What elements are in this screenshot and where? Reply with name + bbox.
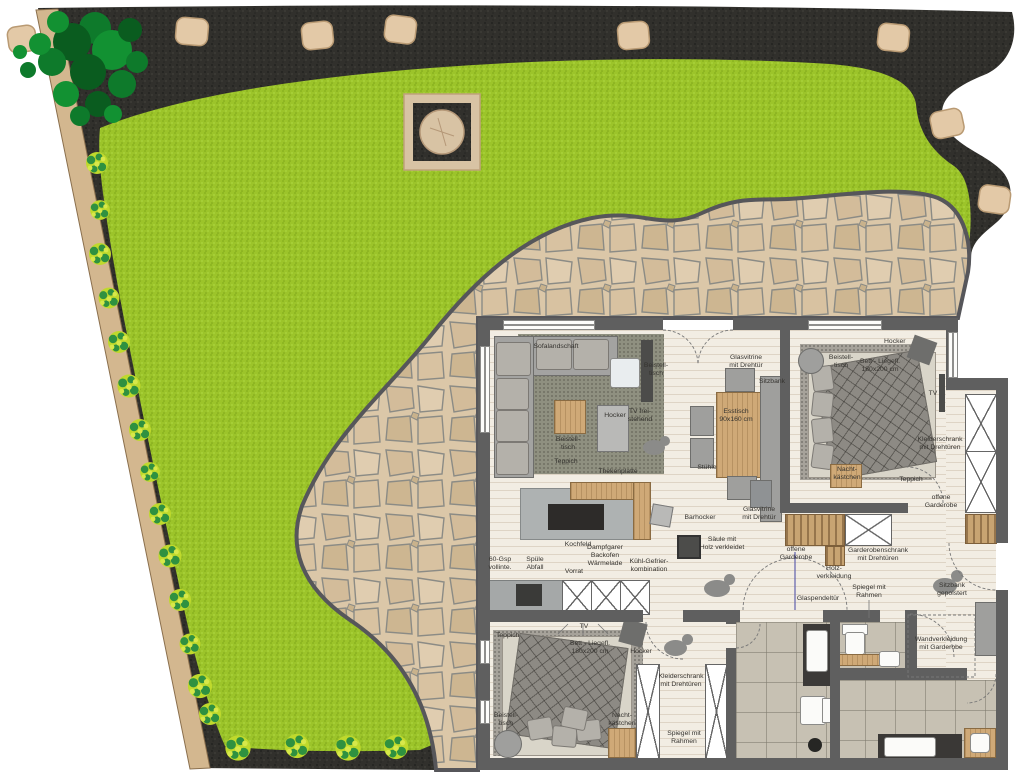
label-b2-nightstand: Nacht- kästchen	[608, 712, 635, 728]
terrace-door-swing	[698, 330, 733, 365]
label-hall-open-closet: offene Garderobe	[780, 546, 813, 562]
label-side-table-wood: Beistell- tisch	[556, 436, 580, 452]
label-hall-mirror: Spiegel mit Rahmen	[852, 584, 886, 600]
square-feature	[404, 94, 480, 170]
label-side-table-white: Beistell- tisch	[644, 362, 668, 378]
label-pantry: Vorrat	[565, 568, 583, 576]
leader-lines	[558, 600, 869, 635]
label-sink: Spüle Abfall	[526, 556, 543, 572]
label-b1-tv: TV	[929, 390, 938, 398]
label-b1-bed: Bett - Liegefl. 180x200 cm	[860, 358, 900, 374]
label-sofa: Sofalandschaft	[534, 343, 579, 351]
label-b2-tv: TV	[580, 623, 589, 631]
label-column: Säule mit Holz verkleidet	[700, 536, 745, 552]
label-b1-side-table: Beistell- tisch	[829, 354, 853, 370]
label-living-rug: Teppich	[554, 458, 577, 466]
label-b2-bed: Bett - Liegefl. 180x200 cm	[570, 640, 610, 656]
label-b1-open-closet: offene Garderobe	[925, 494, 958, 510]
label-dishwasher: 60-Gsp vollinte.	[488, 556, 511, 572]
terrace-door-swing	[663, 330, 698, 365]
label-vitrine-top: Glasvitrine mit Drehtür	[729, 354, 763, 370]
label-b1-wardrobe: Kleiderschrank mit Drehtüren	[918, 436, 963, 452]
garden-floorplan: Sofalandschaft Beistell- tisch TV frei- …	[0, 0, 1024, 774]
label-entry-bench: Sitzbank gepolstert	[937, 582, 967, 598]
label-chairs: Stühle	[697, 464, 716, 472]
label-b1-nightstand: Nacht- kästchen	[833, 466, 860, 482]
label-tv-freestanding: TV frei- stehend	[628, 408, 652, 424]
label-living-stool: Hocker	[604, 412, 626, 420]
label-bar-stool: Barhocker	[685, 514, 716, 522]
label-vitrine-lower: Glasvitrine mit Drehtür	[742, 506, 776, 522]
label-b2-side-table: Beistell- tisch	[494, 712, 518, 728]
label-b1-stool: Hocker	[884, 338, 906, 346]
label-b2-mirror: Spiegel mit Rahmen	[667, 730, 701, 746]
label-b2-wardrobe: Kleiderschrank mit Drehtüren	[659, 673, 704, 689]
label-oven: Dampfgarer Backofen Wärmelade	[587, 544, 623, 568]
bath2-door-swing	[967, 674, 996, 703]
label-dining-table: Esstisch 90x160 cm	[719, 408, 752, 424]
bath1-door-swing	[736, 624, 760, 648]
label-wood-panel: Holz- verkleidung	[817, 565, 852, 581]
label-b2-rug: Teppich	[496, 632, 519, 640]
label-b2-stool: Hocker	[630, 648, 652, 656]
label-counter-top: Thekenplatte	[598, 468, 637, 476]
apartment-floorplan: Sofalandschaft Beistell- tisch TV frei- …	[478, 318, 1008, 770]
label-fridge: Kühl-Gefrier- kombination	[630, 558, 669, 574]
label-b1-rug: Teppich	[899, 476, 922, 484]
label-glass-door: Glaspendeltür	[797, 595, 839, 603]
label-dining-bench: Sitzbank	[759, 378, 785, 386]
label-hall-closet: Garderobenschrank mit Drehtüren	[848, 547, 908, 563]
label-wall-cladding: Wandverkleidung mit Garderobe	[915, 636, 967, 652]
